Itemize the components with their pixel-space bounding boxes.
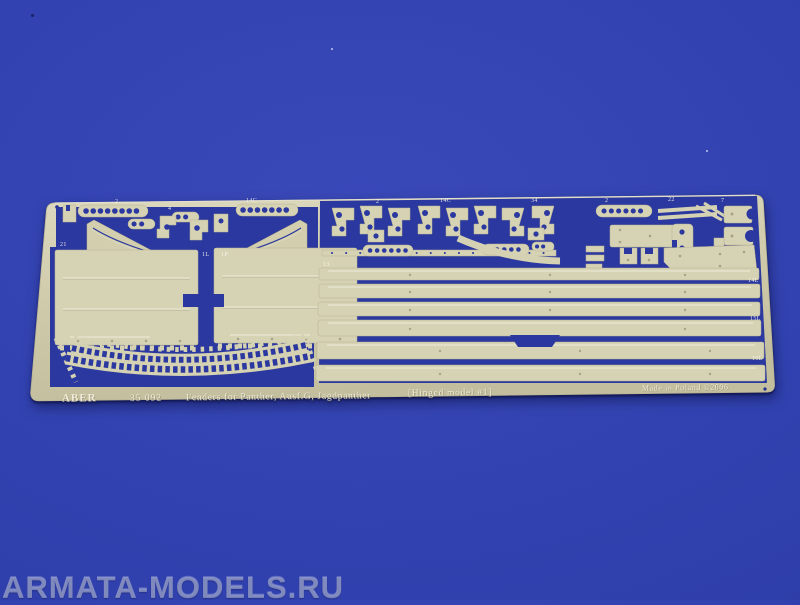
trapezoid-notch-cutout xyxy=(510,335,560,347)
part-number-label: 34 xyxy=(531,198,538,204)
rectangular-cutout xyxy=(183,294,224,307)
part-number-label: 14L xyxy=(748,278,759,284)
fender-panel-left xyxy=(55,250,198,345)
part-number-label: 1L xyxy=(202,252,209,258)
made-in-caption: Made in Poland ©2006 Made in Poland ©200… xyxy=(642,383,729,394)
part-number-label: 2 xyxy=(115,199,118,205)
made-in-text: Made in Poland ©2006 xyxy=(642,383,729,393)
brand-text: ABER xyxy=(62,392,97,404)
watermark-text: ARMATA-MODELS.RU xyxy=(2,572,344,603)
part-number-label: 1P xyxy=(221,252,228,258)
sheet-title-note: [Hinged model #1] xyxy=(408,388,492,399)
part-number-label: 22 xyxy=(668,197,675,203)
dust-speck xyxy=(331,48,333,50)
part-number-label: 16L xyxy=(752,356,763,362)
part-number-label: 4 xyxy=(168,206,171,212)
part-number-label: 2 xyxy=(605,198,608,204)
part-number-label: 14C xyxy=(246,198,257,204)
etched-fret-sheet: 214C4214C342227211L1P1314L15L16L ABER AB… xyxy=(20,190,780,405)
sheet-title: Fenders for Panther, Ausf.G, Jagdpanther xyxy=(186,390,371,403)
part-number-label: 14C xyxy=(440,198,451,204)
product-number: 35 092 xyxy=(130,393,162,403)
part-number-label: 15L xyxy=(750,316,761,322)
tooling-hole xyxy=(763,387,766,390)
part-number-label: 13 xyxy=(323,262,330,268)
dust-speck xyxy=(31,14,34,17)
part-number-label: 7 xyxy=(721,198,724,204)
part-number-label: 2 xyxy=(376,199,379,205)
photo-background: 214C4214C342227211L1P1314L15L16L ABER AB… xyxy=(0,0,800,600)
dust-speck xyxy=(706,150,708,152)
part-number-label: 21 xyxy=(60,242,67,248)
